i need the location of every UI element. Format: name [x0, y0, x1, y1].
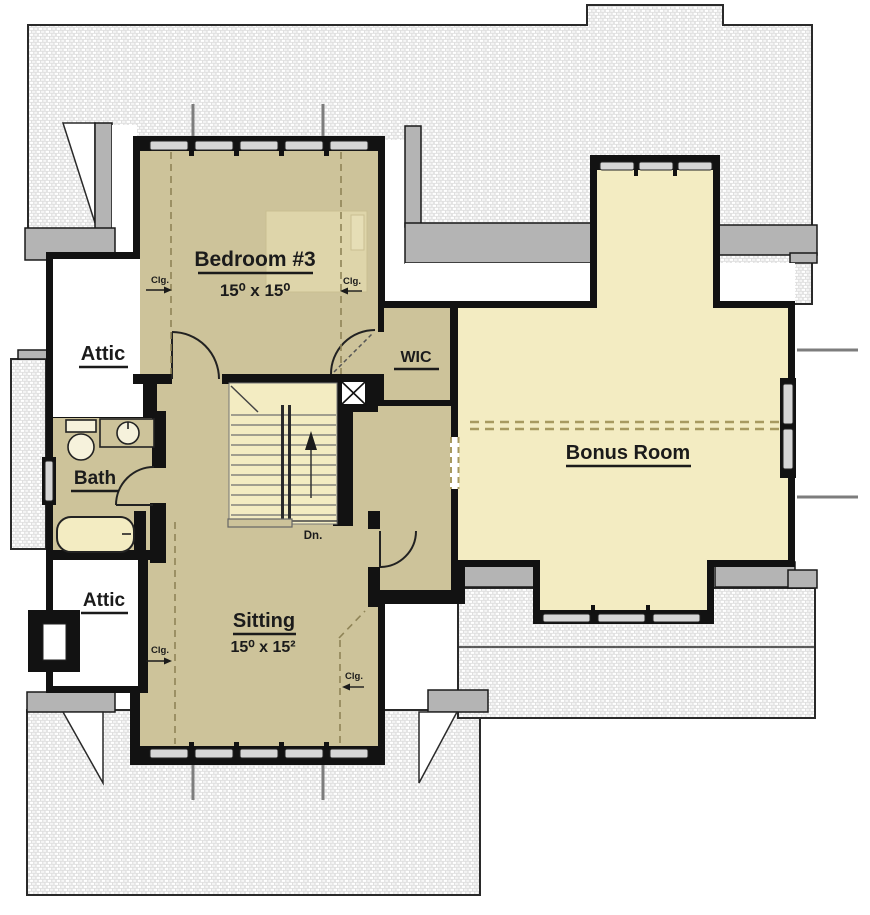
hall-doorway — [368, 529, 380, 567]
toilet-bowl — [68, 434, 94, 460]
white-band-mid — [405, 263, 595, 303]
sitting-dims: 15⁰ x 15² — [230, 639, 295, 656]
room-sitting-floor — [140, 518, 378, 758]
eave-band-bottom-left — [27, 692, 115, 712]
white-strip-bedroom-right — [385, 140, 407, 305]
white-band-right — [720, 263, 795, 303]
bath-label: Bath — [74, 468, 116, 489]
bonus-window-right-1 — [783, 384, 793, 424]
attic-lower-right-wall — [138, 553, 148, 693]
floor-plan: Bedroom #3 15⁰ x 15⁰ Attic Bath Attic WI… — [0, 0, 870, 915]
wic-label: WIC — [400, 349, 432, 366]
bonus-window-right-2 — [783, 429, 793, 469]
bath-doorway — [152, 468, 166, 503]
room-bonus-floor — [458, 308, 788, 560]
attic-lower-label: Attic — [83, 590, 126, 611]
sitting-console — [228, 519, 292, 527]
room-attic-upper-floor — [53, 259, 143, 417]
eave-band-mid-horizontal — [405, 223, 595, 263]
bedroom3-dims: 15⁰ x 15⁰ — [220, 281, 291, 300]
bedroom-wic-doorway — [374, 332, 386, 374]
room-bonus-bottom-dormer-floor — [540, 553, 707, 617]
bath-window — [45, 461, 53, 501]
bed-pillow — [351, 215, 364, 250]
clg-label-bedroom-left: Clg. — [151, 275, 169, 286]
eave-band-bonus-step — [788, 570, 817, 588]
attic-upper-label: Attic — [81, 343, 125, 365]
floor-plan-drawing: Bedroom #3 15⁰ x 15⁰ Attic Bath Attic WI… — [0, 0, 870, 915]
bedroom3-label: Bedroom #3 — [194, 248, 315, 271]
bath-sitting-wall — [134, 511, 146, 558]
bonus-label: Bonus Room — [566, 442, 690, 464]
stair-rail-2 — [288, 405, 291, 520]
roof-left-sliver — [11, 359, 46, 549]
clg-label-bedroom-right: Clg. — [343, 276, 361, 287]
sitting-label: Sitting — [233, 610, 295, 632]
toilet-tank — [66, 420, 96, 432]
stairs — [229, 383, 337, 524]
down-label: Dn. — [304, 530, 323, 542]
eave-band-right-horizontal — [718, 225, 817, 255]
clg-label-sitting-left: Clg. — [151, 645, 169, 656]
stair-rail — [281, 405, 284, 520]
eave-band-bottom-mid — [428, 690, 488, 712]
room-bonus-top-dormer-floor — [597, 162, 713, 312]
eave-band-mid-vertical — [405, 126, 421, 227]
clg-label-sitting-right: Clg. — [345, 671, 363, 682]
eave-band-right-step — [790, 253, 817, 263]
chimney-flue — [43, 624, 66, 660]
